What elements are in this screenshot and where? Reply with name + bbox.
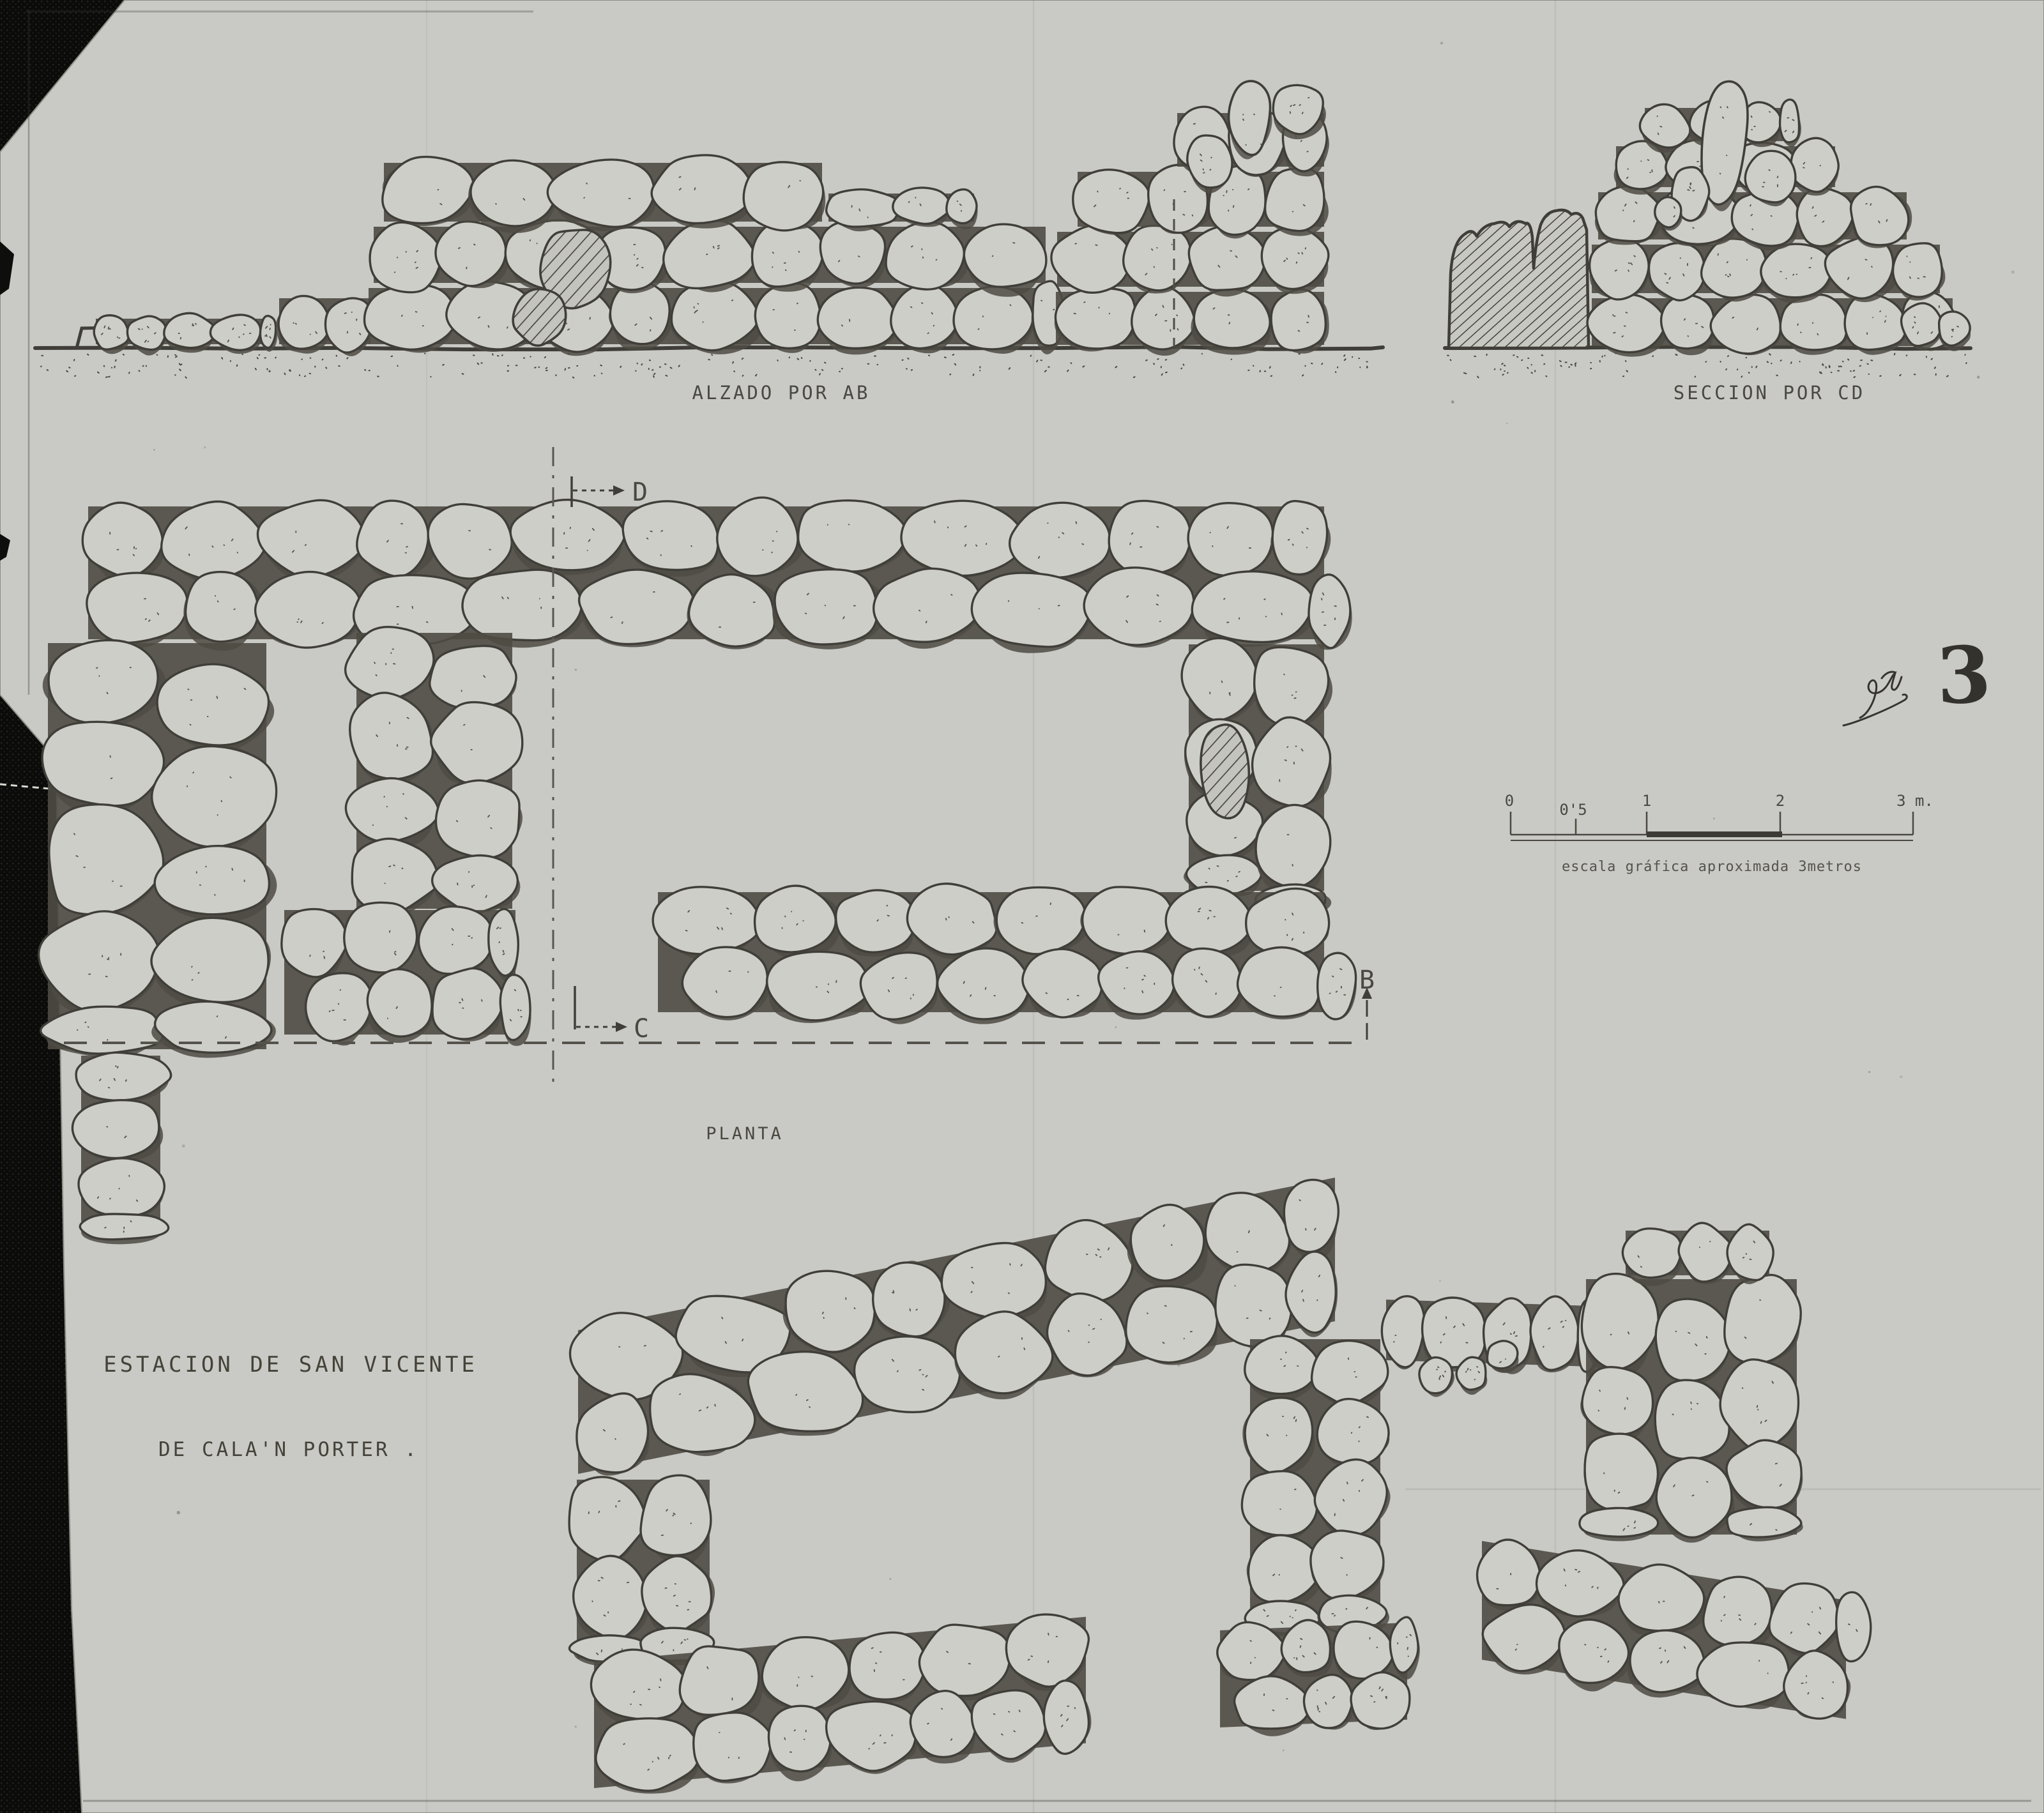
wall-lower-mid — [1242, 1336, 1390, 1637]
wall-lower-right — [1580, 1274, 1803, 1543]
sheet-title-line2: DE CALA'N PORTER . — [158, 1438, 419, 1461]
wall-elev-tower-r2 — [1051, 225, 1329, 296]
wall-plan-top — [82, 497, 1352, 653]
caption-elevation: ALZADO POR AB — [692, 382, 871, 404]
scale-caption: escala gráfica aproximada 3metros — [1562, 859, 1862, 875]
marker-b-label: B — [1359, 966, 1375, 995]
wall-plan-inner-bottom — [282, 902, 531, 1046]
marker-c-label: C — [634, 1014, 649, 1043]
scale-tick-1: 1 — [1642, 792, 1651, 810]
wall-lower-right-cap — [1622, 1223, 1773, 1286]
scale-tick-3m: 3 m. — [1896, 792, 1933, 810]
wall-elev-row-small — [94, 313, 277, 355]
plate-number: 3 — [1935, 628, 1993, 722]
wall-plan-left — [39, 640, 277, 1058]
wall-plan-bottom — [653, 884, 1357, 1024]
wall-plan-left-tail — [72, 1052, 171, 1244]
wall-lower-left — [569, 1475, 715, 1666]
wall-lower-mid-foot — [1217, 1617, 1420, 1736]
marker-d-label: D — [632, 478, 648, 507]
scale-tick-05: 0'5 — [1559, 801, 1587, 819]
caption-section: SECCION POR CD — [1674, 382, 1865, 404]
wall-elev-main-top — [383, 155, 825, 233]
scale-tick-2: 2 — [1776, 792, 1785, 810]
scale-tick-0: 0 — [1505, 792, 1514, 810]
scanned-sheet: ALZADO POR AB SECCION POR CD PLANTA ESTA… — [0, 0, 2044, 1813]
section-hatched-mass — [1449, 210, 1589, 348]
wall-elev-main-mid — [370, 220, 1046, 297]
sheet-title-line1: ESTACION DE SAN VICENTE — [103, 1352, 478, 1377]
wall-plan-inner — [346, 627, 522, 915]
caption-plan: PLANTA — [706, 1124, 784, 1144]
